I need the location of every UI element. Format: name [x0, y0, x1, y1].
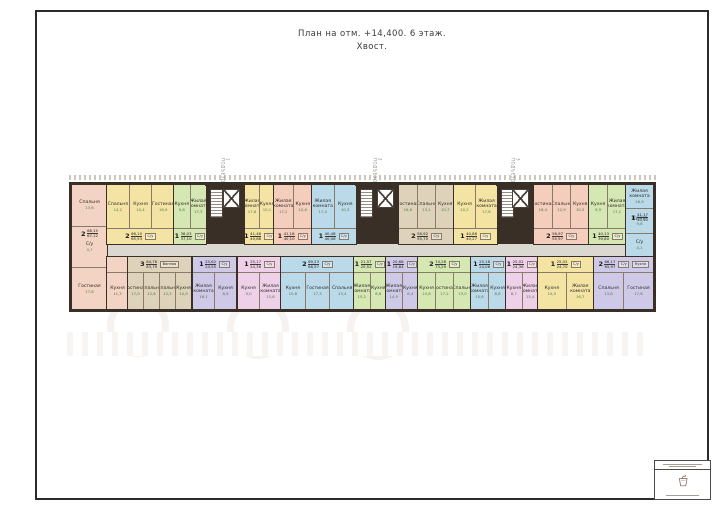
room-area: 10,9: [179, 292, 187, 296]
room-area: 17,6: [634, 292, 642, 296]
room: Спальня13,0: [453, 273, 471, 309]
room-label: Жилая комната: [568, 284, 594, 294]
drawing-title-line2: Хвост.: [37, 41, 707, 54]
room: Жилая комната15,8: [259, 273, 281, 309]
unit-rooms: Кухня10,6Гостиная17,2Спальня13,0: [418, 273, 471, 309]
room: Кухня10,1: [259, 185, 274, 228]
room-label: Кухня: [296, 202, 310, 207]
room: Спальня13,6: [72, 185, 107, 226]
unit-rooms: Жилая комната17,4Кухня10,3: [312, 185, 356, 228]
wet-room-chip: С/у: [480, 233, 491, 240]
wet-room-chip: С/у: [264, 261, 275, 268]
room-area: 13,0: [458, 292, 466, 296]
room-area: 17,8: [85, 290, 93, 294]
unit-areas: 66,1765,97: [604, 260, 615, 270]
stamp-logo-icon: [675, 473, 691, 489]
unit-area-label: 141,1740,90: [626, 213, 653, 223]
unit-areas: 21,5720,52: [361, 260, 372, 270]
unit-rooms-count: 2: [598, 261, 603, 268]
unit-area-label: 140,1339,80: [592, 232, 609, 242]
room: Жилая комната17,6: [245, 185, 259, 228]
room-area: 10,3: [341, 208, 349, 212]
unit-rooms: Жилая комната14,9Кухня8,4: [386, 273, 418, 309]
unit-rooms: Спальня13,8Гостиная17,6: [594, 273, 653, 309]
wet-room-chip: С/у: [527, 261, 538, 268]
wet-room-chip: С/у: [618, 261, 629, 268]
room: Жилая комната15,2: [354, 273, 370, 309]
room: Спальня13,1: [417, 185, 436, 228]
unit-area-label: 266,1765,97: [598, 260, 615, 270]
unit-rooms: Кухня11,3: [107, 273, 128, 309]
room: Спальня13,4: [329, 273, 354, 309]
room-area: 16,1: [199, 295, 207, 299]
room-area: 17,0: [131, 292, 139, 296]
apartment-unit: Жилая комната17,4Кухня10,3140,4840,06С/у: [312, 185, 356, 244]
unit-hall: 141,1840,10С/у: [274, 228, 312, 244]
room-area: 15,6: [475, 295, 483, 299]
wet-room-chip: С/у: [612, 233, 623, 240]
apartment-unit: 125,6224,55С/уЖилая комната16,1Кухня8,9: [193, 257, 236, 309]
unit-area-label: 138,0337,10: [175, 232, 192, 242]
room-area: 13,8: [604, 292, 612, 296]
unit-rooms: Гостиная16,6Спальня13,1Кухня10,7: [399, 185, 454, 228]
unit-hall: 120,6819,84С/у: [386, 257, 418, 273]
unit-areas: 69,2368,57: [308, 260, 319, 270]
room-label: Гостиная: [152, 202, 174, 207]
unit-rooms-count: 1: [319, 233, 324, 240]
unit-hall: 125,6224,55С/у: [193, 257, 236, 273]
room-area: 17,2: [279, 210, 287, 214]
room-area: 8,4: [407, 292, 413, 296]
unit-hall: 125,0224,36С/у: [506, 257, 538, 273]
room-area: 16,9: [159, 208, 167, 212]
unit-area-label: 125,1824,06: [473, 260, 490, 270]
room-area: 17,8: [482, 210, 490, 214]
unit-hall: 266,1065,53С/у: [107, 228, 174, 244]
unit-areas: 20,6819,84: [393, 260, 404, 270]
room: Кухня10,2: [454, 185, 475, 228]
unit-rooms: Гостиная16,4Спальня12,9Кухня10,5: [534, 185, 589, 228]
unit-area-label: 141,1840,10: [278, 232, 295, 242]
wet-room-chip: С/у: [431, 233, 442, 240]
room: Кухня8,6: [370, 273, 387, 309]
unit-living-area: 73,29: [435, 265, 446, 269]
unit-living-area: 24,36: [250, 265, 261, 269]
unit-areas: 68,1567,12: [87, 229, 98, 239]
wet-room-chip: С/у: [298, 233, 309, 240]
unit-rooms: Гостиная17,0Спальня12,6Спальня12,2Кухня1…: [128, 273, 191, 309]
room-area: 12,2: [163, 292, 171, 296]
apartment-unit: 125,0224,36С/уКухня8,7Жилая комната15,4: [506, 257, 538, 309]
room-label: Спальня: [108, 202, 128, 207]
stamp-box: [654, 460, 711, 500]
room: Жилая комната17,8: [475, 185, 497, 228]
apartment-unit: Спальня13,6С/у4,7Гостиная17,8268,1567,12: [72, 185, 107, 309]
wet-room-chip: С/у: [219, 261, 230, 268]
unit-areas: 38,0337,10: [181, 232, 192, 242]
unit-area-label: 125,0224,36: [507, 260, 524, 270]
unit-hall: 256,9255,70С/у: [399, 228, 454, 244]
room-label: Кухня: [175, 202, 189, 207]
apartment-unit: 125,1824,06С/уЖилая комната15,6Кухня8,8: [471, 257, 506, 309]
room: Кухня10,6: [418, 273, 435, 309]
room-label: Кухня: [260, 202, 274, 207]
wet-room-chip: С/у: [195, 233, 206, 240]
unit-hall: 121,5720,52С/у: [354, 257, 386, 273]
stamp-header: [655, 461, 710, 470]
wet-room-chip: С/у: [145, 233, 156, 240]
unit-rooms-count: 2: [411, 233, 416, 240]
apartment-unit: Спальня14,2Кухня10,4Гостиная16,9266,1065…: [107, 185, 174, 244]
room: Кухня10,5: [570, 185, 589, 228]
unit-areas: 25,1724,36: [250, 260, 261, 270]
room-label: Спальня: [552, 202, 571, 207]
unit-area-label: 256,9255,70: [411, 232, 428, 242]
stamp-text-bar: [669, 466, 697, 467]
room: Гостиная17,0: [128, 273, 143, 309]
corridor: [107, 244, 628, 257]
room-area: 9,8: [179, 208, 185, 212]
unit-areas: 41,1840,10: [284, 232, 295, 242]
wet-room-chip: С/у: [493, 261, 504, 268]
unit-areas: 40,1339,80: [598, 232, 609, 242]
room-area: 12,6: [147, 292, 155, 296]
unit-living-area: 40,06: [325, 237, 336, 241]
unit-living-area: 20,52: [361, 265, 372, 269]
unit-rooms-count: 1: [244, 261, 249, 268]
unit-living-area: 39,80: [598, 237, 609, 241]
unit-area-label: 141,4640,86: [244, 232, 261, 242]
unit-living-area: 24,70: [557, 265, 568, 269]
unit-living-area: 83,79: [146, 265, 157, 269]
elevator-icon: [377, 189, 394, 208]
unit-rooms: Кухня9,9Жилая комната17,1: [589, 185, 626, 228]
unit-living-area: 19,84: [393, 265, 404, 269]
room-area: 17,2: [440, 292, 448, 296]
unit-rooms: Кухня9,0Жилая комната15,8: [238, 273, 281, 309]
room: Кухня10,3: [334, 185, 357, 228]
unit-area-label: 120,6819,84: [387, 260, 404, 270]
unit-hall: 266,1765,97С/уКухня: [594, 257, 653, 273]
room-area: 4,7: [86, 248, 92, 252]
room-area: 17,1: [613, 210, 621, 214]
unit-area-label: 125,6224,55: [199, 260, 216, 270]
wet-room-chip: Кухня: [632, 261, 648, 268]
unit-areas: 25,1824,06: [479, 260, 490, 270]
room-label: Кухня: [338, 202, 352, 207]
unit-hall: 140,8640,27С/у: [454, 228, 497, 244]
unit-living-area: 65,53: [131, 237, 142, 241]
unit-rooms-count: 1: [355, 261, 360, 268]
unit-rooms-count: 1: [175, 233, 180, 240]
stamp-text-bar: [663, 464, 702, 465]
room: Гостиная16,6: [399, 185, 417, 228]
room-label: Жилая комната: [386, 284, 402, 294]
room-area: 10,1: [263, 208, 271, 212]
apartment-unit: Кухня9,8Жилая комната17,3138,0337,10С/у: [174, 185, 206, 244]
unit-areas: 84,7683,79: [146, 260, 157, 270]
unit-rooms-count: 1: [473, 261, 478, 268]
unit-rooms: Кухня10,8Гостиная17,3Спальня13,4: [281, 273, 354, 309]
room-label: Жилая комната: [245, 199, 259, 209]
unit-rooms-count: 2: [302, 261, 307, 268]
unit-areas: 56,9755,97: [552, 232, 563, 242]
unit-area-label: 266,1065,53: [125, 232, 142, 242]
apartment-unit: 384,7683,79ВаннаяГостиная17,0Спальня12,6…: [128, 257, 191, 309]
unit-hall: 269,2368,57С/у: [281, 257, 354, 273]
dimension-tick-strip: [69, 175, 656, 180]
room: Кухня10,9: [175, 273, 191, 309]
unit-area-label: 121,5720,52: [355, 260, 372, 270]
room: Жилая комната17,4: [312, 185, 334, 228]
room-area: 13,4: [338, 292, 346, 296]
wet-room-chip: С/у: [322, 261, 333, 268]
room-area: 9,9: [595, 208, 601, 212]
wet-room-chip: Ванная: [160, 261, 179, 268]
unit-rooms: Жилая комната17,6Кухня10,1: [245, 185, 274, 228]
elevator-icon: [512, 189, 529, 208]
room: Гостиная17,2: [435, 273, 453, 309]
unit-rooms-count: 1: [460, 233, 465, 240]
unit-areas: 41,1740,90: [637, 213, 648, 223]
entrance-label: 2 ПОДЪЕЗД: [373, 158, 383, 182]
room-area: 16,4: [539, 208, 547, 212]
room-area: 16,9: [635, 200, 643, 204]
room: Кухня8,7: [506, 273, 522, 309]
unit-rooms-count: 1: [507, 261, 512, 268]
unit-hall: 384,7683,79Ванная: [128, 257, 191, 273]
wet-room-chip: С/у: [339, 233, 350, 240]
unit-hall: [107, 257, 128, 273]
entrance-label: 1 ПОДЪЕЗД: [221, 158, 231, 182]
room-area: 14,9: [390, 295, 398, 299]
room-area: 10,6: [299, 208, 307, 212]
room: Кухня11,3: [107, 273, 128, 309]
room: Спальня14,2: [107, 185, 129, 228]
room-label: Гостиная: [534, 202, 552, 207]
unit-living-area: 65,97: [604, 265, 615, 269]
unit-hall: 140,4840,06С/у: [312, 228, 356, 244]
wet-room-chip: С/у: [449, 261, 460, 268]
room: Гостиная16,9: [151, 185, 174, 228]
room-area: 11,3: [113, 292, 121, 296]
room: Кухня9,0: [238, 273, 259, 309]
room-area: 8,8: [494, 292, 500, 296]
unit-rooms: Кухня10,2Жилая комната17,8: [454, 185, 497, 228]
unit-areas: 74,2873,29: [435, 260, 446, 270]
room: Гостиная17,8: [72, 267, 107, 309]
unit-rooms: Спальня14,2Кухня10,4Гостиная16,9: [107, 185, 174, 228]
room-label: Кухня: [573, 202, 587, 207]
unit-area-label: 268,1567,12: [72, 229, 107, 239]
floor-plan: Спальня13,6С/у4,7Гостиная17,8268,1567,12…: [69, 182, 656, 312]
apartment-unit: 269,2368,57С/уКухня10,8Гостиная17,3Спаль…: [281, 257, 354, 309]
room-area: 10,8: [289, 292, 297, 296]
wet-room-chip: С/у: [375, 261, 386, 268]
unit-areas: 41,4640,86: [250, 232, 261, 242]
unit-living-area: 24,06: [479, 265, 490, 269]
drawing-title: План на отм. +14,400. 6 этаж. Хвост.: [37, 28, 707, 54]
room-area: 15,4: [526, 295, 534, 299]
unit-area-label: 140,4840,06: [319, 232, 336, 242]
room: Жилая комната15,6: [471, 273, 488, 309]
unit-rooms: Кухня8,7Жилая комната15,4: [506, 273, 538, 309]
room: Спальня12,9: [552, 185, 571, 228]
room: Гостиная17,6: [623, 273, 653, 309]
room-area: 13,6: [85, 206, 93, 210]
room-area: 10,4: [136, 208, 144, 212]
room-area: 8,7: [511, 292, 517, 296]
room-label: Жилая комната: [260, 284, 280, 294]
elevator-icon: [223, 189, 240, 208]
unit-rooms-count: 1: [244, 233, 249, 240]
stairs-icon: [360, 189, 373, 218]
unit-living-area: 37,10: [181, 237, 192, 241]
room-label: Гостиная: [399, 202, 417, 207]
apartment-unit: Кухня11,3: [107, 257, 128, 309]
apartment-unit: 274,2873,29С/уКухня10,6Гостиная17,2Спаль…: [418, 257, 471, 309]
unit-rooms-count: 1: [199, 261, 204, 268]
room: Кухня9,9: [589, 185, 607, 228]
room-label: Жилая комната: [313, 199, 333, 209]
room-label: Кухня: [457, 202, 471, 207]
apartment-unit: Жилая комната16,9Кухня9,6С/у4,1141,1740,…: [626, 185, 653, 257]
apartment-unit: 125,1724,36С/уКухня9,0Жилая комната15,8: [238, 257, 281, 309]
unit-rooms-count: 1: [551, 261, 556, 268]
unit-rooms: Жилая комната16,1Кухня8,9: [193, 273, 236, 309]
room: Кухня10,4: [129, 185, 152, 228]
room-area: 9,0: [245, 292, 251, 296]
apartment-unit: Кухня10,2Жилая комната17,8140,8640,27С/у: [454, 185, 497, 244]
room-area: 15,8: [266, 295, 274, 299]
apartment-unit: 121,5720,52С/уЖилая комната15,2Кухня8,6: [354, 257, 386, 309]
unit-living-area: 24,36: [513, 265, 524, 269]
unit-area-label: 140,8640,27: [460, 232, 477, 242]
unit-areas: 56,9255,70: [417, 232, 428, 242]
unit-rooms: Спальня13,6С/у4,7Гостиная17,8: [72, 185, 107, 309]
apartment-unit: Гостиная16,6Спальня13,1Кухня10,7256,9255…: [399, 185, 454, 244]
room: Жилая комната14,9: [386, 273, 402, 309]
room: Жилая комната16,1: [193, 273, 214, 309]
room-label: Жилая комната: [274, 199, 293, 209]
room: Кухня10,8: [281, 273, 305, 309]
unit-rooms-count: 1: [592, 233, 597, 240]
room: Гостиная16,4: [534, 185, 552, 228]
wet-room-chip: С/у: [571, 261, 582, 268]
unit-areas: 25,6224,55: [205, 260, 216, 270]
apartment-unit: 266,1765,97С/уКухняСпальня13,8Гостиная17…: [594, 257, 653, 309]
unit-rooms-count: 2: [546, 233, 551, 240]
room: Жилая комната17,3: [190, 185, 207, 228]
drawing-title-line1: План на отм. +14,400. 6 этаж.: [37, 28, 707, 41]
unit-hall: 125,0224,70С/у: [538, 257, 594, 273]
unit-rooms: Кухня10,0Жилая комната16,7: [538, 273, 594, 309]
room-area: 10,5: [576, 208, 584, 212]
room: Кухня10,6: [293, 185, 313, 228]
unit-hall: 140,1339,80С/у: [589, 228, 626, 244]
room-area: 10,2: [460, 208, 468, 212]
room-label: Кухня: [133, 202, 147, 207]
unit-rooms: Кухня9,8Жилая комната17,3: [174, 185, 206, 228]
room: Кухня10,7: [435, 185, 454, 228]
room: Жилая комната15,4: [522, 273, 539, 309]
room-label: Жилая комната: [522, 284, 539, 294]
unit-area-label: 384,7683,79: [140, 260, 157, 270]
room: Жилая комната17,1: [607, 185, 626, 228]
room: Кухня8,8: [488, 273, 506, 309]
unit-rooms-count: 2: [81, 231, 86, 238]
sheet-frame: План на отм. +14,400. 6 этаж. Хвост. Спа…: [35, 10, 709, 500]
room: Спальня12,6: [143, 273, 159, 309]
room-area: 15,2: [358, 295, 366, 299]
room-area: 12,9: [557, 208, 565, 212]
apartment-unit: Жилая комната17,6Кухня10,1141,4640,86С/у: [245, 185, 274, 244]
unit-living-area: 40,86: [250, 237, 261, 241]
room-area: 8,9: [222, 292, 228, 296]
unit-hall: 256,9755,97С/у: [534, 228, 589, 244]
unit-living-area: 40,27: [466, 237, 477, 241]
stamp-text-bar: [666, 495, 699, 496]
room-area: 17,3: [194, 210, 202, 214]
room-label: Спальня: [417, 202, 436, 207]
room: Кухня8,9: [214, 273, 236, 309]
room-area: 13,1: [422, 208, 430, 212]
room-area: 17,3: [313, 292, 321, 296]
apartment-unit: 125,0224,70С/уКухня10,0Жилая комната16,7: [538, 257, 594, 309]
room: Жилая комната17,2: [274, 185, 293, 228]
unit-rooms: Жилая комната17,2Кухня10,6: [274, 185, 312, 228]
unit-living-area: 40,10: [284, 237, 295, 241]
room-area: 8,6: [375, 292, 381, 296]
room-label: Жилая комната: [471, 284, 488, 294]
room-area: 10,0: [548, 292, 556, 296]
room-area: 4,1: [636, 246, 642, 250]
unit-hall: 125,1724,36С/у: [238, 257, 281, 273]
room-area: 10,7: [441, 208, 449, 212]
room-area: 14,2: [114, 208, 122, 212]
unit-areas: 40,8640,27: [466, 232, 477, 242]
room-label: Жилая комната: [193, 284, 213, 294]
unit-rooms-count: 3: [140, 261, 145, 268]
unit-areas: 25,0224,70: [557, 260, 568, 270]
apartment-unit: Гостиная16,4Спальня12,9Кухня10,5256,9755…: [534, 185, 589, 244]
unit-rooms-count: 1: [278, 233, 283, 240]
unit-areas: 25,0224,36: [513, 260, 524, 270]
room-area: 16,7: [576, 295, 584, 299]
unit-areas: 40,4840,06: [325, 232, 336, 242]
unit-area-label: 125,1724,36: [244, 260, 261, 270]
unit-living-area: 55,70: [417, 237, 428, 241]
unit-hall: 138,0337,10С/у: [174, 228, 206, 244]
apartment-unit: Кухня9,9Жилая комната17,1140,1339,80С/у: [589, 185, 626, 244]
unit-area-label: 269,2368,57: [302, 260, 319, 270]
unit-rooms-count: 2: [429, 261, 434, 268]
room-label: Кухня: [591, 202, 605, 207]
watermark: [67, 332, 647, 356]
unit-hall: 125,1824,06С/у: [471, 257, 506, 273]
wet-room-chip: С/у: [566, 233, 577, 240]
unit-rooms-count: 2: [125, 233, 130, 240]
room-label: Жилая комната: [627, 189, 652, 199]
room: Жилая комната16,9: [626, 185, 653, 208]
apartment-unit: Жилая комната17,2Кухня10,6141,1840,10С/у: [274, 185, 312, 244]
room-label: Жилая комната: [476, 199, 496, 209]
room-area: 17,4: [319, 210, 327, 214]
room-label: Жилая комната: [354, 284, 370, 294]
unit-living-area: 40,90: [637, 218, 648, 222]
stairs-icon: [210, 189, 223, 218]
unit-living-area: 68,57: [308, 265, 319, 269]
